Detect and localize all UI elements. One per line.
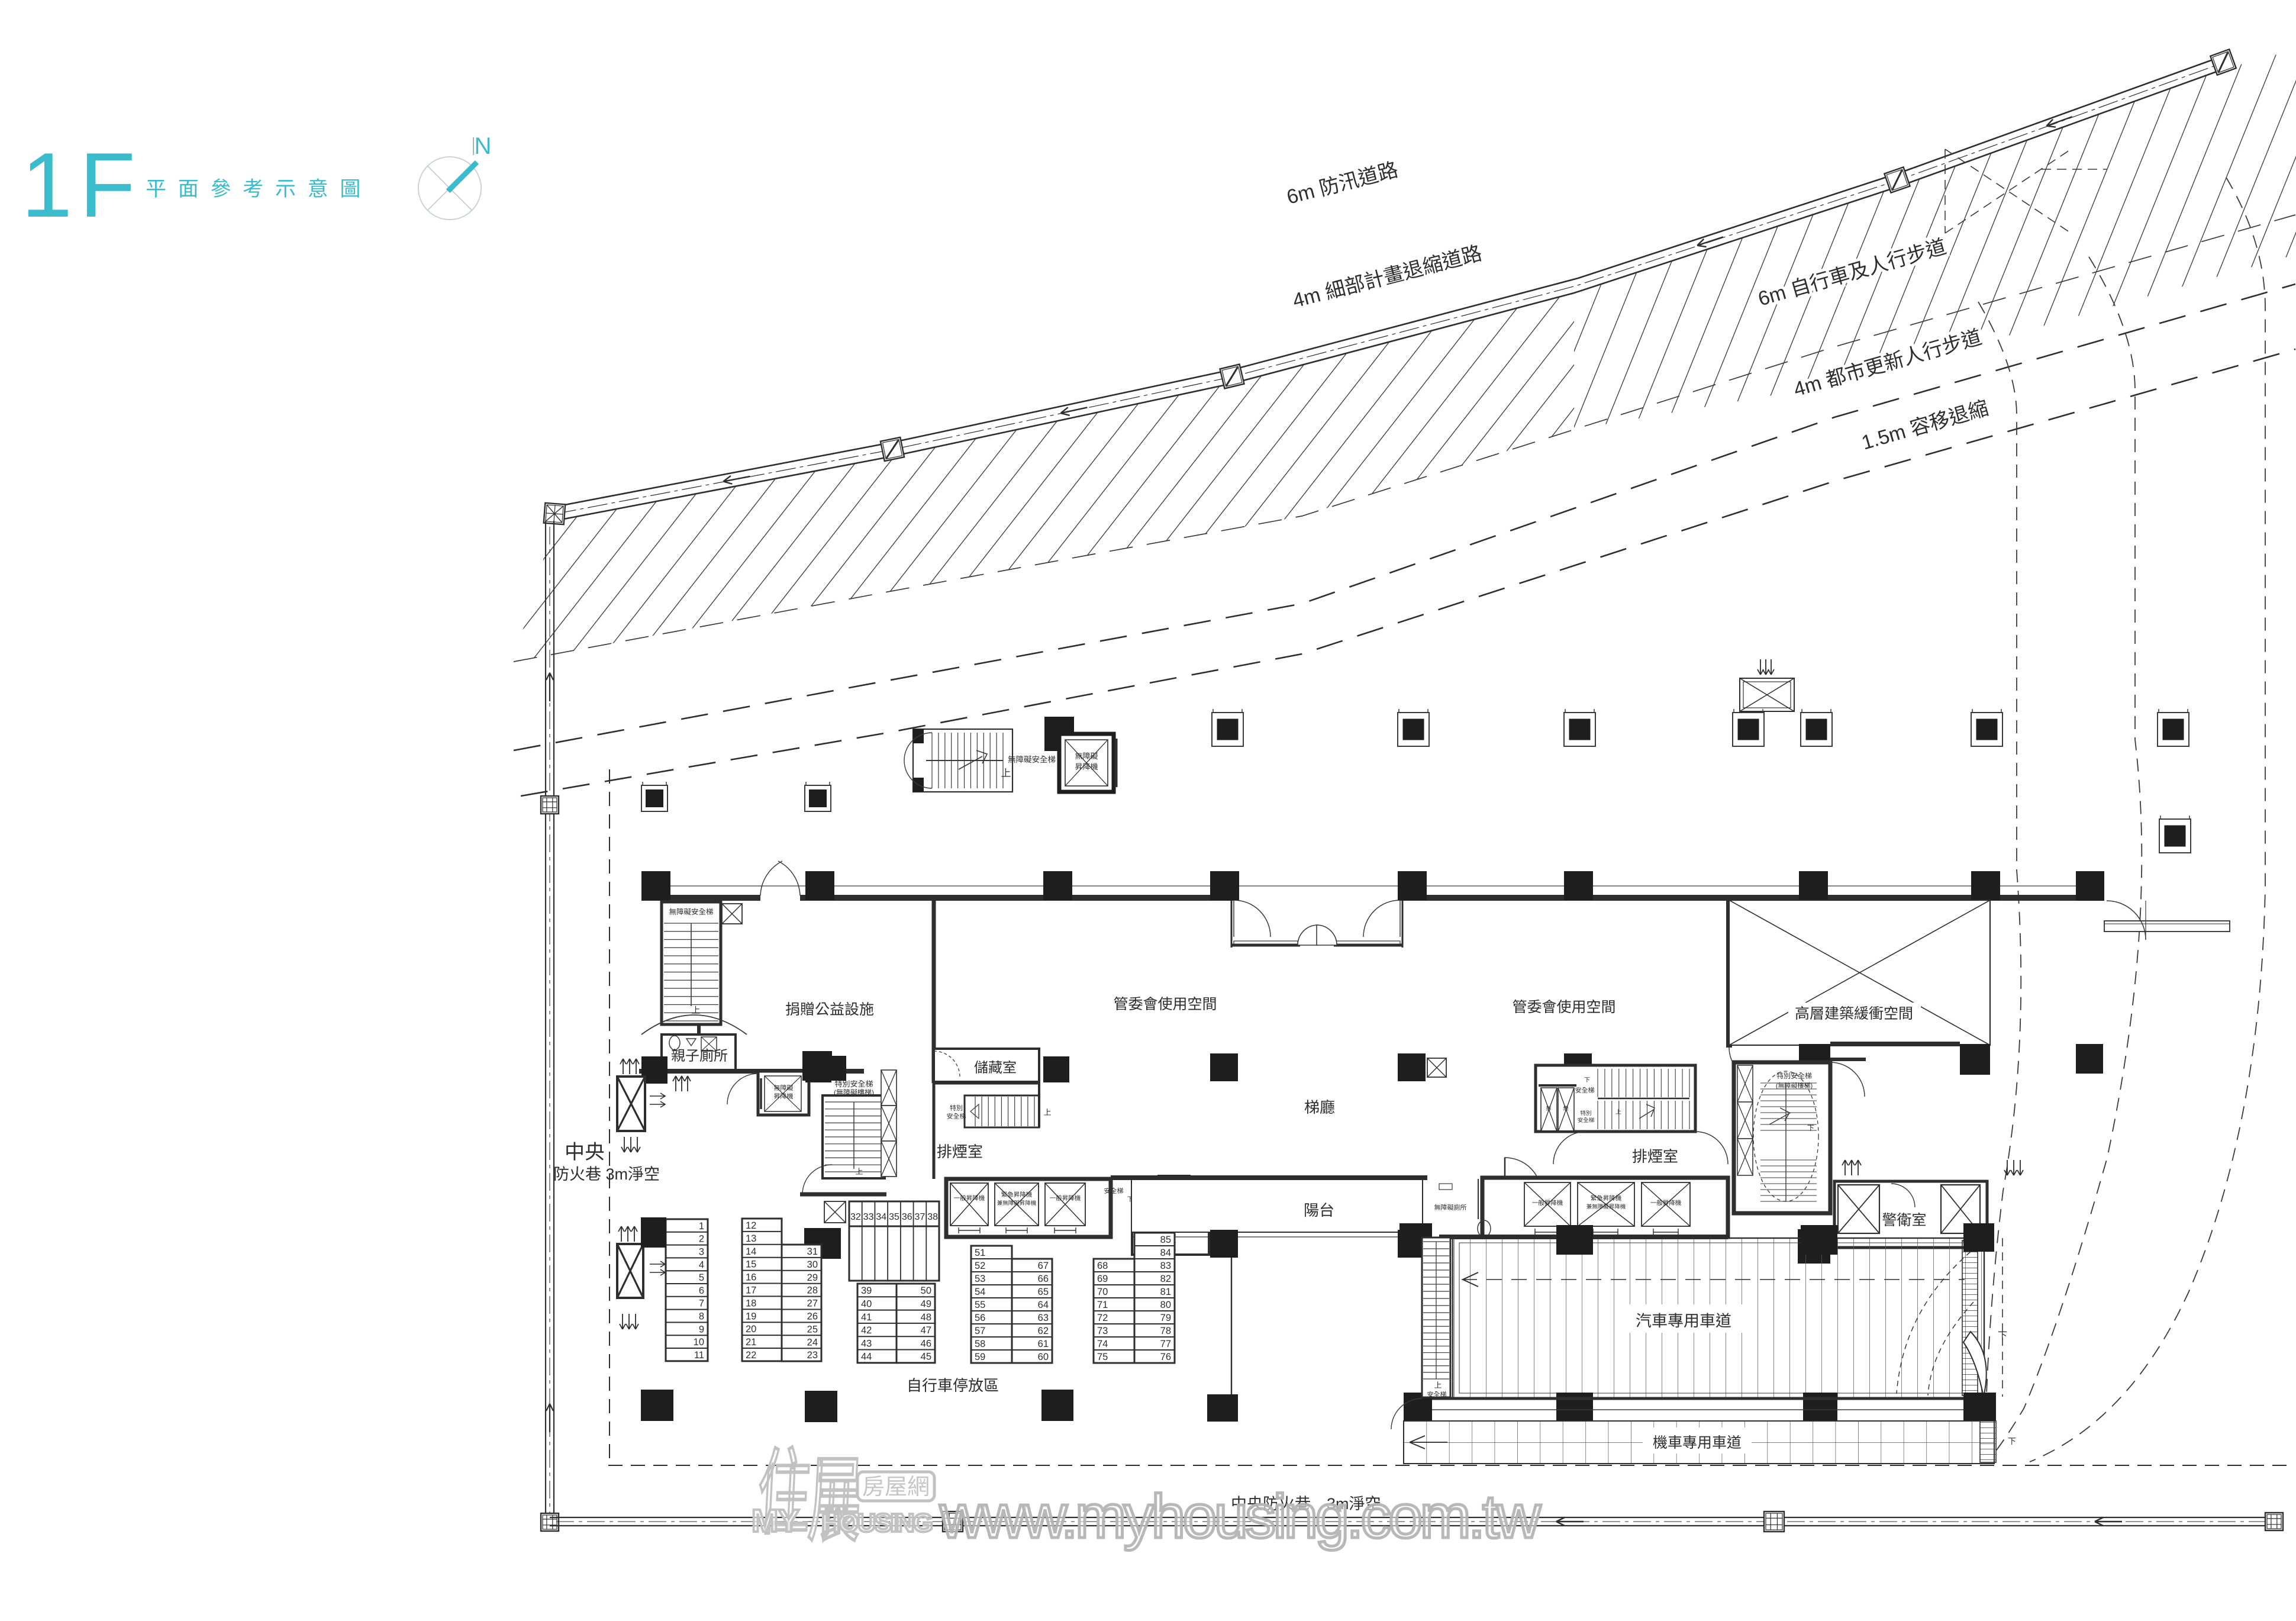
svg-text:5: 5 (699, 1272, 704, 1283)
svg-text:37: 37 (915, 1212, 926, 1222)
svg-text:管委會使用空間: 管委會使用空間 (1113, 992, 1217, 1014)
svg-text:排: 排 (1546, 1104, 1551, 1112)
svg-text:N: N (475, 133, 492, 159)
svg-text:9: 9 (699, 1324, 704, 1335)
svg-text:62: 62 (1038, 1326, 1049, 1336)
svg-text:排煙室: 排煙室 (1632, 1145, 1678, 1166)
svg-text:76: 76 (1160, 1352, 1171, 1362)
svg-text:19: 19 (746, 1311, 756, 1322)
svg-text:緊急昇降機: 緊急昇降機 (1001, 1190, 1033, 1199)
svg-text:上: 上 (1001, 765, 1011, 779)
svg-text:57: 57 (975, 1326, 985, 1336)
svg-text:69: 69 (1097, 1274, 1108, 1284)
svg-text:30: 30 (807, 1259, 818, 1270)
svg-text:14: 14 (746, 1246, 756, 1257)
svg-text:49: 49 (921, 1298, 931, 1309)
svg-text:34: 34 (876, 1212, 886, 1222)
svg-text:上: 上 (855, 1165, 863, 1177)
svg-text:26: 26 (807, 1311, 818, 1322)
svg-text:管委會使用空間: 管委會使用空間 (1512, 995, 1615, 1017)
svg-text:77: 77 (1160, 1339, 1171, 1349)
svg-text:81: 81 (1160, 1287, 1171, 1297)
svg-text:63: 63 (1038, 1313, 1049, 1323)
svg-text:18: 18 (746, 1298, 756, 1309)
svg-text:42: 42 (861, 1325, 872, 1336)
svg-text:43: 43 (861, 1338, 872, 1349)
svg-text:安全梯: 安全梯 (1578, 1116, 1595, 1124)
svg-text:汽車專用車道: 汽車專用車道 (1636, 1308, 1731, 1331)
svg-text:一般昇降機: 一般昇降機 (954, 1194, 985, 1203)
svg-text:22: 22 (746, 1350, 756, 1361)
svg-text:安全梯: 安全梯 (1104, 1186, 1124, 1195)
svg-text:74: 74 (1097, 1339, 1108, 1349)
svg-text:59: 59 (975, 1352, 985, 1362)
svg-text:23: 23 (807, 1350, 818, 1361)
svg-text:www.myhousing.com.tw: www.myhousing.com.tw (939, 1483, 1542, 1551)
svg-text:HOUSING: HOUSING (821, 1509, 934, 1538)
svg-text:32: 32 (850, 1212, 861, 1222)
svg-text:80: 80 (1160, 1300, 1171, 1310)
svg-text:46: 46 (921, 1338, 931, 1349)
svg-text:38: 38 (927, 1212, 938, 1222)
svg-text:55: 55 (975, 1300, 985, 1310)
svg-text:16: 16 (746, 1272, 756, 1283)
svg-text:79: 79 (1160, 1313, 1171, 1323)
svg-text:機車專用車道: 機車專用車道 (1653, 1431, 1742, 1452)
svg-text:54: 54 (975, 1287, 985, 1297)
svg-text:84: 84 (1160, 1248, 1171, 1258)
svg-text:10: 10 (694, 1337, 704, 1348)
svg-text:56: 56 (975, 1313, 985, 1323)
svg-text:85: 85 (1160, 1235, 1171, 1245)
svg-text:39: 39 (861, 1285, 872, 1296)
svg-text:MY: MY (752, 1503, 799, 1539)
svg-text:安全梯: 安全梯 (947, 1111, 966, 1121)
svg-text:53: 53 (975, 1274, 985, 1284)
svg-text:24: 24 (807, 1337, 818, 1348)
svg-text:無障礙安全梯: 無障礙安全梯 (1008, 753, 1056, 765)
svg-text:45: 45 (921, 1352, 931, 1362)
svg-text:7: 7 (699, 1298, 704, 1309)
svg-text:上: 上 (1434, 1379, 1442, 1390)
svg-text:無障礙: 無障礙 (1075, 750, 1098, 761)
svg-text:64: 64 (1038, 1300, 1049, 1310)
svg-text:44: 44 (861, 1352, 872, 1362)
svg-text:中央: 中央 (565, 1136, 605, 1165)
svg-text:21: 21 (746, 1337, 756, 1348)
svg-text:3: 3 (699, 1247, 704, 1258)
svg-text:1: 1 (699, 1221, 704, 1232)
svg-text:12: 12 (746, 1220, 756, 1231)
svg-text:上: 上 (1615, 1107, 1621, 1116)
svg-text:61: 61 (1038, 1339, 1049, 1349)
svg-text:1F: 1F (21, 134, 143, 236)
svg-text:兼無障礙昇降機: 兼無障礙昇降機 (1586, 1202, 1626, 1210)
svg-text:27: 27 (807, 1298, 818, 1309)
svg-text:警衛室: 警衛室 (1882, 1209, 1926, 1230)
svg-text:17: 17 (746, 1285, 756, 1295)
svg-text:35: 35 (889, 1212, 899, 1222)
svg-text:29: 29 (807, 1272, 818, 1283)
svg-text:83: 83 (1160, 1261, 1171, 1271)
svg-text:上: 上 (1043, 1106, 1051, 1117)
svg-text:60: 60 (1038, 1352, 1049, 1362)
svg-text:2: 2 (699, 1234, 704, 1245)
svg-text:下: 下 (2008, 1435, 2016, 1447)
svg-text:一般昇降機: 一般昇降機 (1650, 1198, 1682, 1207)
svg-text:高層建築緩衝空間: 高層建築緩衝空間 (1795, 1002, 1913, 1023)
svg-text:66: 66 (1038, 1274, 1049, 1284)
svg-text:上: 上 (691, 1004, 700, 1016)
svg-text:15: 15 (746, 1259, 756, 1270)
svg-text:8: 8 (699, 1311, 704, 1322)
svg-text:20: 20 (746, 1324, 756, 1335)
svg-text:兼無障礙昇降機: 兼無障礙昇降機 (997, 1198, 1037, 1207)
svg-text:排煙室: 排煙室 (937, 1140, 983, 1162)
svg-text:73: 73 (1097, 1326, 1108, 1336)
svg-text:一般昇降機: 一般昇降機 (1050, 1194, 1081, 1203)
svg-text:親子廁所: 親子廁所 (671, 1044, 728, 1065)
svg-text:一般昇降機: 一般昇降機 (1532, 1198, 1563, 1207)
svg-text:58: 58 (975, 1339, 985, 1349)
svg-text:煙: 煙 (1563, 1104, 1568, 1112)
svg-text:安全梯: 安全梯 (1427, 1390, 1447, 1399)
svg-text:陽台: 陽台 (1304, 1198, 1334, 1220)
svg-text:31: 31 (807, 1246, 818, 1257)
svg-text:41: 41 (861, 1312, 872, 1323)
svg-text:防火巷 3m淨空: 防火巷 3m淨空 (553, 1161, 660, 1184)
svg-text:48: 48 (921, 1312, 931, 1323)
svg-text:47: 47 (921, 1325, 931, 1336)
svg-text:捐贈公益設施: 捐贈公益設施 (785, 998, 874, 1019)
svg-text:71: 71 (1097, 1300, 1108, 1310)
svg-text:安全梯: 安全梯 (1575, 1085, 1595, 1095)
svg-text:特別安全梯: 特別安全梯 (1776, 1071, 1812, 1081)
svg-text:36: 36 (902, 1212, 912, 1222)
svg-text:33: 33 (863, 1212, 874, 1222)
svg-text:65: 65 (1038, 1287, 1049, 1297)
svg-text:25: 25 (807, 1324, 818, 1335)
svg-text:11: 11 (694, 1350, 704, 1361)
svg-text:78: 78 (1160, 1326, 1171, 1336)
svg-text:緊急昇降機: 緊急昇降機 (1591, 1194, 1622, 1203)
svg-text:67: 67 (1038, 1261, 1049, 1271)
svg-text:無障礙廁所: 無障礙廁所 (1434, 1203, 1467, 1212)
svg-text:(無障礙樓梯): (無障礙樓梯) (834, 1087, 874, 1097)
svg-text:50: 50 (921, 1285, 931, 1296)
svg-text:6: 6 (699, 1285, 704, 1296)
svg-text:無障礙安全梯: 無障礙安全梯 (669, 905, 713, 917)
svg-text:房屋網: 房屋網 (862, 1468, 930, 1501)
svg-text:68: 68 (1097, 1261, 1108, 1271)
svg-text:75: 75 (1097, 1352, 1108, 1362)
svg-text:4: 4 (699, 1259, 704, 1270)
svg-text:40: 40 (861, 1298, 872, 1309)
svg-text:51: 51 (975, 1248, 985, 1258)
svg-text:82: 82 (1160, 1274, 1171, 1284)
svg-text:(無障礙樓梯): (無障礙樓梯) (1776, 1081, 1813, 1090)
svg-text:自行車停放區: 自行車停放區 (907, 1374, 999, 1396)
svg-text:72: 72 (1097, 1313, 1108, 1323)
svg-text:平 面 參 考 示 意 圖: 平 面 參 考 示 意 圖 (146, 172, 363, 202)
svg-text:下: 下 (1807, 1123, 1814, 1133)
svg-text:52: 52 (975, 1261, 985, 1271)
svg-text:昇降機: 昇降機 (774, 1091, 794, 1101)
svg-text:28: 28 (807, 1285, 818, 1296)
svg-text:下: 下 (1584, 1075, 1590, 1084)
svg-text:13: 13 (746, 1233, 756, 1244)
svg-text:昇降機: 昇降機 (1075, 760, 1098, 772)
svg-text:70: 70 (1097, 1287, 1108, 1297)
svg-text:儲藏室: 儲藏室 (974, 1056, 1017, 1077)
svg-text:梯廳: 梯廳 (1304, 1095, 1335, 1117)
